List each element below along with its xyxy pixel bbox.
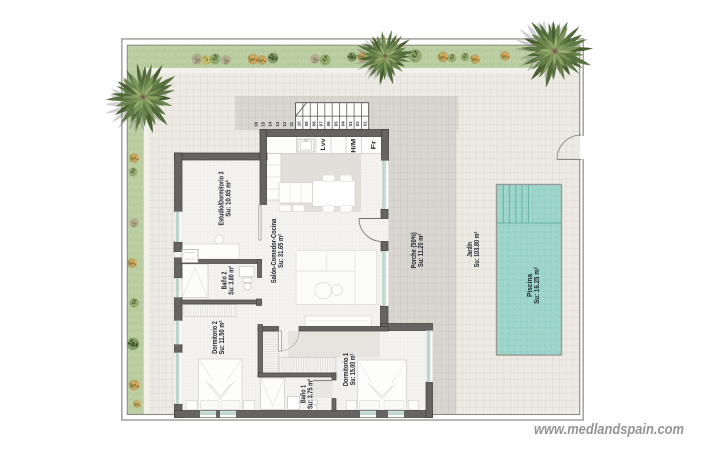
- svg-text:07: 07: [319, 121, 324, 126]
- svg-text:Su: 103.80 m²: Su: 103.80 m²: [474, 231, 481, 267]
- svg-text:06: 06: [326, 121, 331, 126]
- svg-text:Su: 15.00 m²: Su: 15.00 m²: [350, 353, 357, 385]
- svg-text:www.medlandspain.com: www.medlandspain.com: [534, 422, 684, 438]
- svg-text:Dormitorio 1: Dormitorio 1: [343, 353, 350, 386]
- svg-text:14: 14: [268, 121, 273, 126]
- svg-text:Dormitorio 2: Dormitorio 2: [212, 321, 219, 354]
- svg-text:16: 16: [254, 121, 259, 126]
- svg-text:Lvv: Lvv: [320, 138, 327, 151]
- svg-text:Estudio/Dormitorio 3: Estudio/Dormitorio 3: [219, 171, 226, 225]
- svg-text:Su: 11.50 m²: Su: 11.50 m²: [219, 320, 226, 354]
- svg-text:Baño 1: Baño 1: [301, 385, 308, 404]
- svg-text:Porche (50%): Porche (50%): [411, 232, 418, 268]
- svg-text:15: 15: [261, 121, 266, 126]
- svg-text:Fr: Fr: [371, 140, 378, 150]
- svg-text:Su: 3.75 m²: Su: 3.75 m²: [308, 378, 315, 409]
- svg-text:Su: 16.25 m²: Su: 16.25 m²: [534, 267, 541, 304]
- svg-text:02: 02: [355, 121, 360, 126]
- svg-text:Su: 10.65 m²: Su: 10.65 m²: [226, 180, 233, 217]
- svg-text:Salón-Comedor-Cocina: Salón-Comedor-Cocina: [271, 219, 278, 284]
- svg-text:13: 13: [275, 121, 280, 126]
- svg-text:H/M: H/M: [351, 139, 358, 153]
- svg-text:05: 05: [333, 121, 338, 126]
- svg-text:10: 10: [297, 121, 302, 126]
- svg-text:Piscina: Piscina: [527, 274, 534, 297]
- svg-text:03: 03: [348, 121, 353, 126]
- svg-text:Su: 3.80 m²: Su: 3.80 m²: [229, 266, 236, 295]
- svg-text:09: 09: [304, 121, 309, 126]
- svg-text:12: 12: [282, 121, 287, 126]
- svg-text:08: 08: [311, 121, 316, 126]
- svg-text:11: 11: [289, 121, 294, 126]
- svg-text:Jardín: Jardín: [467, 242, 474, 257]
- svg-text:Su: 31.65 m²: Su: 31.65 m²: [278, 233, 285, 268]
- svg-text:Baño 2: Baño 2: [222, 271, 229, 289]
- svg-text:04: 04: [341, 121, 346, 126]
- svg-text:Su: 11.20 m²: Su: 11.20 m²: [418, 233, 425, 267]
- svg-text:01: 01: [363, 121, 368, 126]
